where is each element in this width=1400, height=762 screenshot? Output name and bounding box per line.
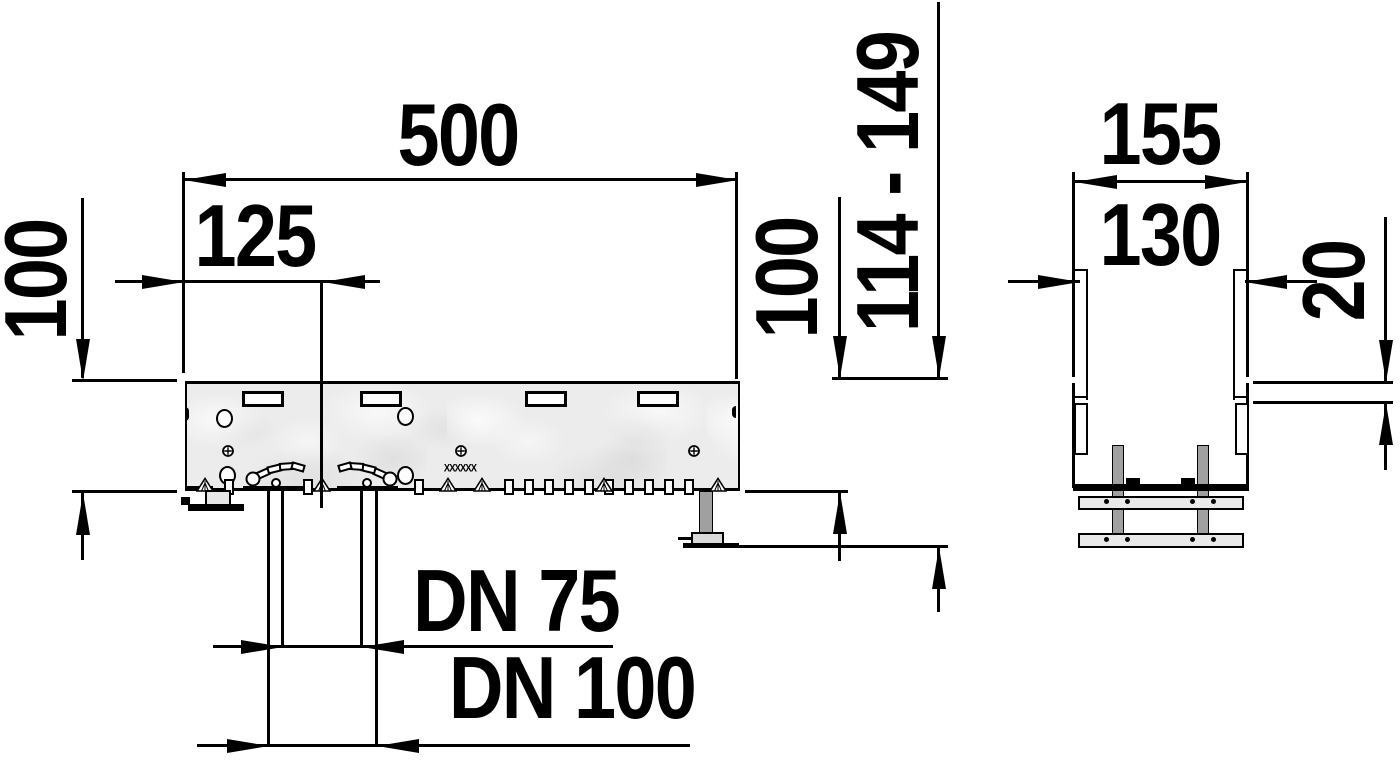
section-slot-left — [1074, 403, 1088, 455]
dim-155-label: 155 — [1099, 90, 1220, 178]
anchor-wedge-icon — [439, 477, 457, 492]
section-wall-right-cap — [1233, 269, 1249, 271]
screw-icon-2 — [454, 444, 468, 458]
dim-100R-ext-top — [832, 377, 948, 380]
bottom-clip — [303, 479, 313, 495]
dim-100L-arrow-bottom — [76, 493, 90, 535]
dim-range-arrow-top — [932, 336, 946, 378]
body-hole-2 — [397, 407, 414, 426]
dim-range-arrow-bottom — [932, 547, 946, 589]
rail-rivet-dot — [1190, 499, 1195, 504]
bottom-clip — [544, 479, 554, 495]
section-tab-left — [1126, 478, 1140, 484]
dim-125-arrow-left — [142, 275, 184, 289]
dim-range-stem-top — [937, 2, 940, 378]
dim-100R-ext-bottom — [745, 490, 848, 493]
body-marking-label: XXXXXX — [444, 464, 476, 475]
dim-100R-arrow-top — [833, 336, 847, 378]
anchor-wedge-icon — [709, 477, 727, 492]
body-edge-tick-right — [732, 406, 736, 418]
anchor-wedge-icon — [595, 477, 613, 492]
dim-20-label: 20 — [1290, 241, 1378, 322]
dim-height-range-label: 114 - 149 — [844, 32, 932, 332]
dim-100R-arrow-bottom — [833, 492, 847, 534]
dim-20-arrow-bottom — [1379, 403, 1393, 445]
section-post-right — [1197, 445, 1209, 539]
dim-dn100-line — [197, 744, 690, 747]
dim-dn75-label: DN 75 — [413, 557, 619, 645]
dim-100-left-label: 100 — [0, 219, 80, 340]
dim-125-arrow-right — [323, 275, 365, 289]
rail-rivet-dot — [1104, 537, 1109, 542]
dim-500-arrow-left — [184, 173, 226, 187]
dim-100L-arrow-top — [76, 339, 90, 381]
body-edge-tick-left — [185, 407, 189, 421]
dim-500-ext-left — [182, 172, 185, 373]
body-slot-2 — [360, 391, 402, 407]
dim-100L-ext-bottom — [72, 490, 177, 493]
dim-20-ext-bottom — [1253, 401, 1393, 404]
section-hook-left — [1073, 396, 1087, 398]
section-hook-right — [1234, 396, 1248, 398]
section-post-left — [1112, 445, 1124, 539]
rail-rivet-dot — [1125, 499, 1130, 504]
body-hole-4 — [397, 466, 414, 485]
right-foot-base — [683, 543, 739, 548]
dim-range-ext-bottom — [737, 545, 948, 548]
section-wall-left-cap — [1072, 269, 1088, 271]
screw-icon-3 — [687, 444, 701, 458]
rail-rivet-dot — [1104, 499, 1109, 504]
rail-rivet-dot — [1125, 537, 1130, 542]
body-hole-1 — [216, 409, 233, 428]
dim-dn100-arrow-right — [377, 739, 419, 753]
rail-rivet-dot — [1211, 537, 1216, 542]
section-wall-right-inner — [1233, 270, 1235, 400]
technical-drawing-canvas: XXXXXX — [0, 0, 1400, 762]
dim-500-label: 500 — [397, 91, 518, 179]
bottom-clip — [664, 479, 674, 495]
bottom-clip — [564, 479, 574, 495]
clamp-bracket-left — [245, 461, 307, 490]
bottom-clip — [684, 479, 694, 495]
bottom-clip — [644, 479, 654, 495]
dim-dn75-arrow-left — [241, 640, 283, 654]
dim-130-label: 130 — [1099, 191, 1220, 279]
dim-100-right-label: 100 — [743, 217, 831, 338]
bottom-clip — [414, 479, 424, 495]
dim-130-arrow-left — [1038, 275, 1080, 289]
dim-130-arrow-right — [1245, 275, 1287, 289]
bottom-clip — [584, 479, 594, 495]
section-wall-left-inner — [1086, 270, 1088, 400]
dim-dn100-arrow-left — [227, 739, 269, 753]
section-floor — [1073, 484, 1249, 491]
body-slot-4 — [637, 391, 679, 407]
dim-dn100-label: DN 100 — [449, 644, 695, 732]
outlet2-line-outer — [375, 491, 378, 746]
dim-20-ext-top — [1253, 381, 1393, 384]
dim-dn75-arrow-right — [362, 640, 404, 654]
outlet1-line-inner — [281, 491, 284, 647]
dim-20-arrow-top — [1379, 340, 1393, 382]
section-rail-upper — [1078, 496, 1244, 510]
bottom-clip — [624, 479, 634, 495]
section-rail-lower — [1078, 533, 1244, 548]
rail-rivet-dot — [1190, 537, 1195, 542]
dim-500-arrow-right — [696, 173, 738, 187]
anchor-wedge-icon — [473, 477, 491, 492]
bottom-clip — [524, 479, 534, 495]
dim-125-label: 125 — [194, 192, 315, 280]
screw-icon-1 — [221, 444, 235, 458]
dim-100L-ext-top — [72, 379, 177, 382]
right-foot-post — [699, 491, 713, 536]
section-slot-right — [1235, 403, 1249, 455]
outlet2-line-inner — [360, 491, 363, 647]
outlet1-line-outer — [267, 491, 270, 746]
left-foot-base — [188, 504, 244, 511]
right-foot-lip — [678, 537, 692, 540]
bottom-clip — [504, 479, 514, 495]
clamp-bracket-right — [336, 461, 398, 490]
rail-rivet-dot — [1211, 499, 1216, 504]
outlet-centerline — [320, 282, 323, 508]
body-slot-3 — [525, 391, 567, 407]
body-slot-1 — [242, 391, 284, 407]
section-tab-right — [1181, 478, 1195, 484]
